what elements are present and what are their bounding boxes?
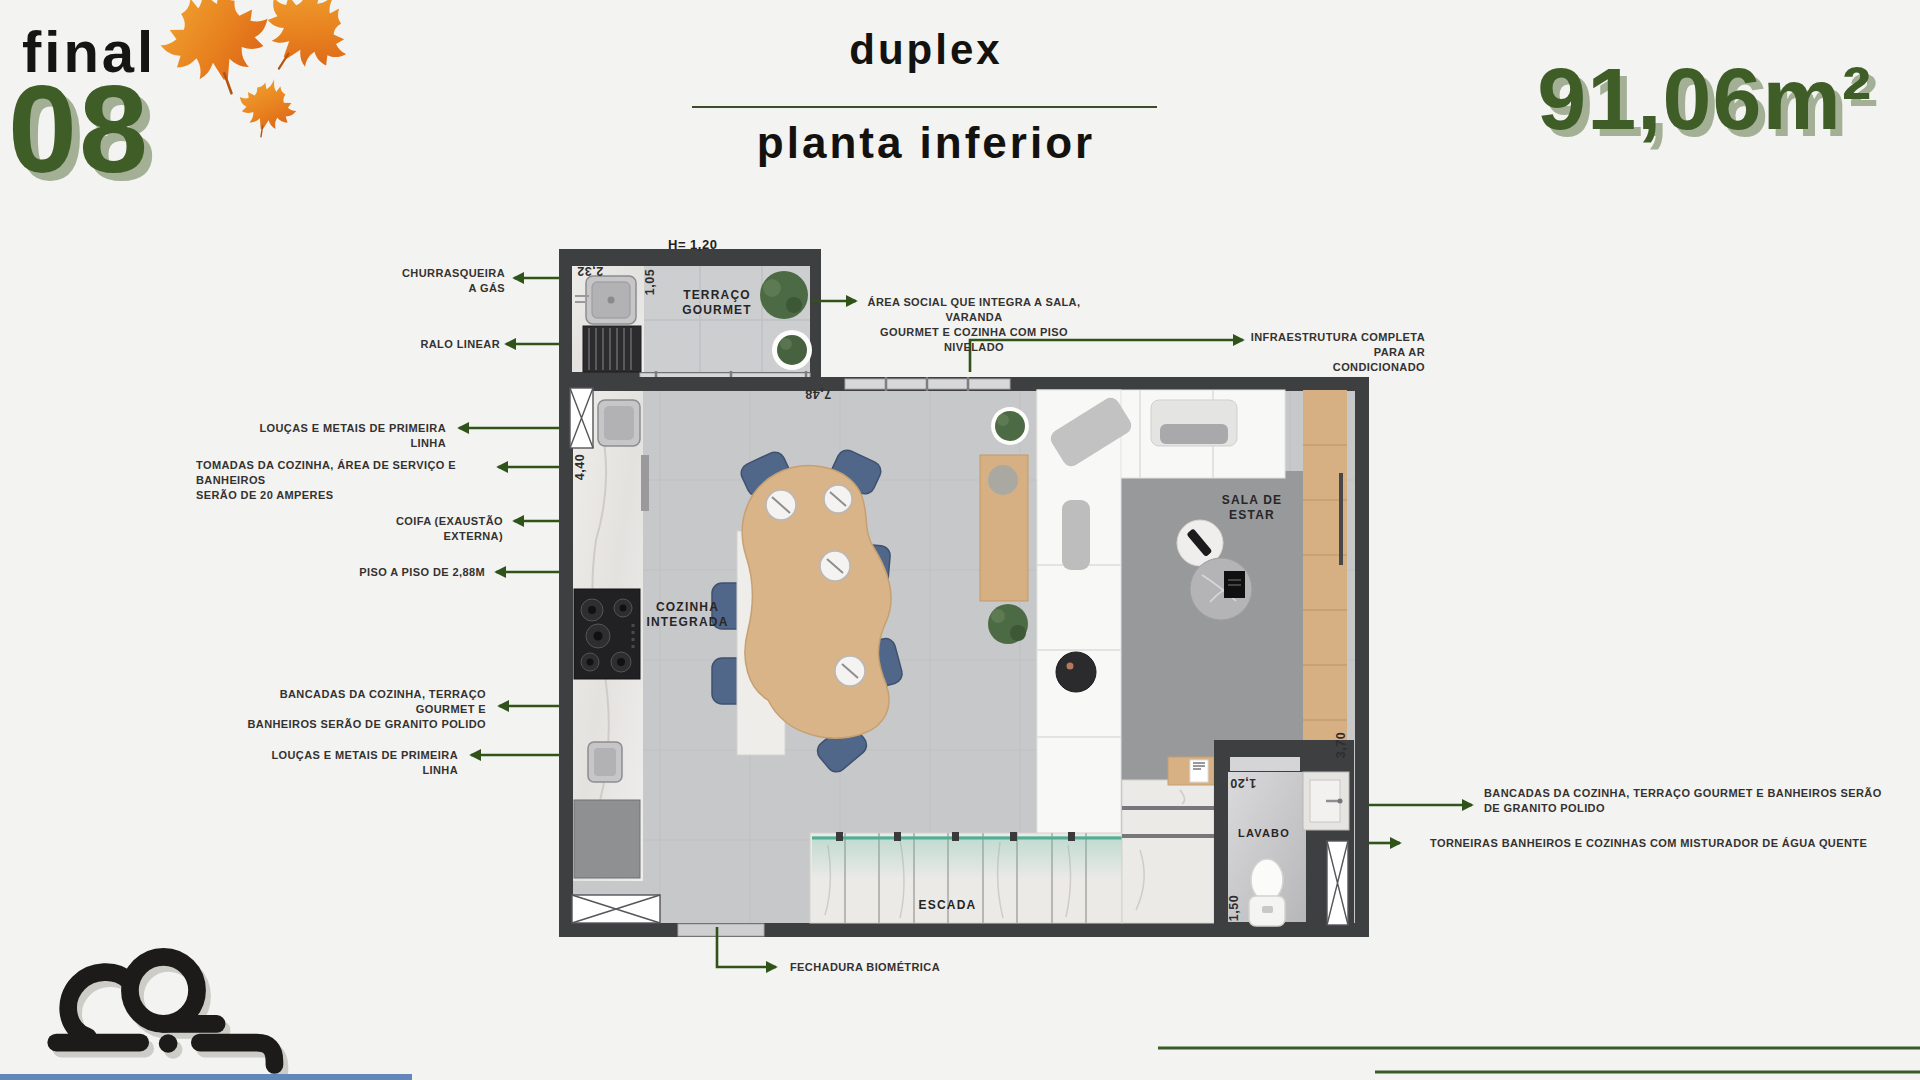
grill-icon xyxy=(583,326,641,372)
dim-3-70: 3,70 xyxy=(1334,732,1348,758)
callout-loucas-metais-1: LOUÇAS E METAIS DE PRIMEIRA LINHA xyxy=(238,421,446,451)
callout-coifa: COIFA (EXAUSTÃO EXTERNA) xyxy=(345,514,503,544)
kitchen-cabinet xyxy=(574,800,640,878)
callout-tomadas: TOMADAS DA COZINHA, ÁREA DE SERVIÇO E BA… xyxy=(196,458,488,503)
logo-left-loop xyxy=(68,972,129,1037)
callout-fechadura-biometrica: FECHADURA BIOMÉTRICA xyxy=(790,960,1010,975)
lavabo-basin xyxy=(1303,772,1349,830)
brand-logo xyxy=(30,940,310,1078)
parapet-height-note: H= 1,20 xyxy=(668,237,717,252)
room-label-cozinha-integrada: COZINHA INTEGRADA xyxy=(630,600,745,630)
oven-handle xyxy=(641,455,649,511)
logo-tail xyxy=(200,1043,275,1065)
stair-landing xyxy=(1122,780,1214,923)
callout-bancadas-left: BANCADAS DA COZINHA, TERRAÇO GOURMET E B… xyxy=(240,687,486,732)
dim-1-05: 1,05 xyxy=(643,269,657,295)
callout-infraestrutura-ar: INFRAESTRUTURA COMPLETA PARA AR CONDICIO… xyxy=(1230,330,1425,375)
entry-door xyxy=(678,924,764,936)
dim-1-50: 1,50 xyxy=(1227,895,1241,921)
floor-plan xyxy=(0,0,1920,1080)
callout-loucas-metais-2: LOUÇAS E METAIS DE PRIMEIRA LINHA xyxy=(250,748,458,778)
callout-area-social: ÁREA SOCIAL QUE INTEGRA A SALA, VARANDA … xyxy=(864,295,1084,355)
callout-torneiras: TORNEIRAS BANHEIROS E COZINHAS COM MISTU… xyxy=(1430,836,1880,851)
room-label-sala-de-estar: SALA DE ESTAR xyxy=(1198,493,1306,523)
callout-bancadas-right: BANCADAS DA COZINHA, TERRAÇO GOURMET E B… xyxy=(1484,786,1884,816)
callout-churrasqueira: CHURRASQUEIRA A GÁS xyxy=(355,266,505,296)
dim-4-40: 4,40 xyxy=(573,454,587,480)
room-label-escada: ESCADA xyxy=(900,898,995,913)
side-table xyxy=(1056,652,1096,692)
toilet xyxy=(1249,859,1285,926)
lavabo-threshold xyxy=(1230,757,1300,771)
dim-7-48: 7,48 xyxy=(805,387,831,401)
logo-dot xyxy=(159,1034,178,1053)
callout-piso-a-piso: PISO A PISO DE 2,88M xyxy=(330,565,485,580)
callout-ralo-linear: RALO LINEAR xyxy=(345,337,500,352)
dim-1-20: 1,20 xyxy=(1230,776,1256,790)
room-label-terraco-gourmet: TERRAÇO GOURMET xyxy=(662,288,772,318)
logo-ring xyxy=(130,957,197,1024)
console-sideboard xyxy=(980,455,1028,601)
glass-rail-tint xyxy=(812,836,1122,880)
page: final 08 duplex planta inferior 91,06m² xyxy=(0,0,1920,1080)
footer-rules xyxy=(1158,1048,1920,1072)
door-handle xyxy=(1339,473,1343,565)
footer-accent-strip xyxy=(0,1074,412,1080)
stair-shelf xyxy=(1168,757,1214,785)
room-label-lavabo: LAVABO xyxy=(1222,826,1306,841)
dim-2-32: 2,32 xyxy=(577,264,603,278)
